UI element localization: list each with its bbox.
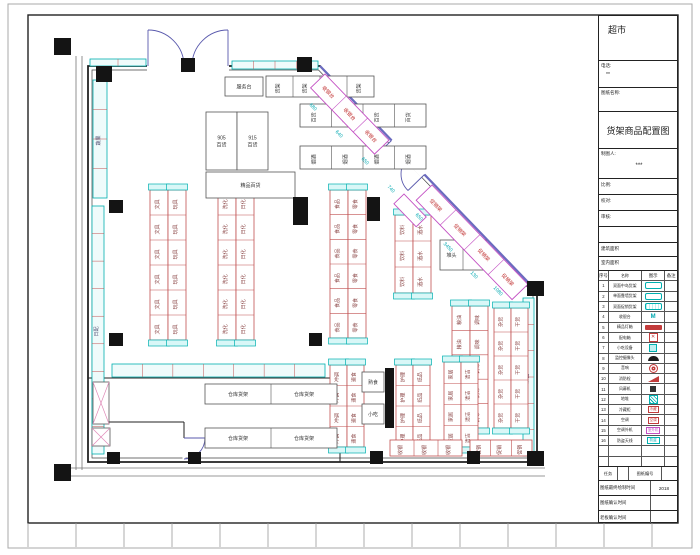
legend-row-name: 空调外机 (609, 426, 642, 435)
gondola-endcap (460, 356, 480, 362)
gondola-cell-label: 护理 (400, 413, 407, 423)
fixture-box-label: 精品百货 (240, 182, 260, 189)
store-name: 超市 (599, 16, 677, 61)
gondola-cell-label: 干货 (515, 317, 522, 327)
gondola-cell-label: 文具 (154, 299, 161, 309)
door-arc (148, 30, 184, 66)
darksq-symbol-icon (650, 386, 656, 392)
building-area-row: 建筑面积 (599, 243, 677, 257)
shelf-symbol-icon (645, 282, 662, 289)
legend-row (599, 446, 677, 456)
gondola-cell-label: 杂货 (498, 413, 505, 423)
gondola-cell-label: 干货 (515, 365, 522, 375)
legend-row-symbol (642, 384, 665, 393)
legend-row-name: 冷藏柜 (609, 405, 642, 414)
gondola-cell-label: 家居 (448, 369, 455, 379)
column (188, 452, 201, 464)
wall-shelf-label: 蔬果 (95, 135, 102, 145)
legend-row-symbol: M (642, 312, 665, 321)
legend-row-note (665, 405, 677, 414)
legend-row-symbol (642, 292, 665, 301)
gondola-cell-label: 零食 (352, 322, 359, 332)
legend-row-name: 双面促销货架 (609, 302, 642, 311)
phone-row: 电话: ** (599, 61, 677, 88)
legend-row-name (609, 446, 642, 455)
legend-row: 2单面靠墙货架 (599, 292, 677, 302)
legend-row-name: 小吃设备 (609, 343, 642, 352)
gondola-cell-label: 调味 (474, 315, 481, 325)
gondola-cell-label: 洗化 (222, 224, 229, 234)
legend-row-note (665, 415, 677, 424)
gondola-cell-label: 百货 (374, 112, 381, 122)
gondola-cell-label: 护理 (400, 393, 407, 403)
gondola-cell-label: 文具 (154, 224, 161, 234)
legend-row-note (665, 395, 677, 404)
dimension-text: 640 (334, 129, 344, 139)
legend-row: 16防盗天线防盗 (599, 436, 677, 446)
column (309, 333, 322, 346)
boss-time-label: 老板确认时间 (599, 511, 651, 524)
gondola-cell-label: 酒水 (417, 251, 424, 261)
legend-row-name: 双面中岛货架 (609, 281, 642, 290)
legend-row: 3双面促销货架 (599, 302, 677, 312)
shelf-symbol-icon (645, 293, 662, 300)
legend-row-note (665, 384, 677, 393)
legend-row-symbol (642, 446, 665, 455)
phone-value: ** (606, 72, 677, 78)
gondola-endcap (347, 338, 368, 344)
redflag-symbol-icon (648, 376, 659, 382)
door-arc (408, 175, 425, 191)
wall-shelf (112, 364, 325, 377)
legend-row-name: 精品灯箱 (609, 323, 642, 332)
gondola-endcap (167, 184, 188, 190)
gondola-cell-label: 饮料 (399, 251, 406, 261)
floor-plan-canvas: 蔬果日配米面货架货架货架货架百货百货百货百货烟酒烟酒烟酒烟酒文具文具文具文具文具… (0, 0, 700, 555)
cyanhatch-symbol-icon (649, 395, 658, 404)
gondola-cell-label: 酒水 (417, 225, 424, 235)
legend-row: 6配电箱✕ (599, 333, 677, 343)
fixture-box-label: 905 (217, 136, 226, 142)
gondola-cell-label: 促销 (496, 445, 503, 455)
legend-row-name: 地堆 (609, 395, 642, 404)
gondola-cell-label: 纸品 (417, 413, 424, 423)
gondola-cell-label: 零食 (352, 273, 359, 283)
gondola-cell-label: 食品 (334, 224, 341, 234)
legend-row: 5精品灯箱 (599, 323, 677, 333)
gondola-endcap (510, 302, 530, 308)
legend-row-no: 1 (599, 281, 609, 290)
column (527, 451, 544, 466)
column (367, 197, 380, 221)
gondola-cell-label: 速食 (351, 372, 358, 382)
legend-row: 8监控摄像头 (599, 354, 677, 364)
task-label: 任务 (599, 467, 618, 480)
gondola-cell-label: 文具 (154, 324, 161, 334)
check-row: 校对: (599, 195, 677, 211)
gondola-cell-label: 洗化 (222, 299, 229, 309)
final-time-value: 2018 (651, 481, 677, 495)
gondola-cell-label: 烟酒 (342, 154, 349, 164)
gondola-cell-label: 货架 (275, 83, 282, 93)
gondola-cell-label: 玩具 (173, 324, 179, 334)
gondola-cell-label: 收银 (445, 445, 452, 455)
gondola-cell-label: 清洁 (465, 412, 472, 422)
legend-row-no: 14 (599, 415, 609, 424)
dimension-text: 130 (469, 270, 479, 280)
gondola-cell-label: 杂货 (498, 341, 505, 351)
column (385, 368, 394, 428)
legend-row: 4收银台M (599, 312, 677, 322)
gondola-cell-label: 速食 (351, 434, 358, 444)
gondola-cell-label: 粮油 (456, 339, 463, 349)
legend-row-no: 8 (599, 354, 609, 363)
fixture-box-label: 915 (248, 136, 257, 142)
legend-row-no: 3 (599, 302, 609, 311)
gondola-cell-label: 百货 (405, 112, 412, 122)
legend-row-note (665, 281, 677, 290)
gondola-cell-label: 食品 (334, 322, 341, 332)
gondola-cell-label: 零食 (352, 248, 359, 258)
gondola-endcap (469, 300, 490, 306)
gondola-cell-label: 堆头 (446, 252, 456, 259)
cyanbox-symbol-icon: 防盗 (647, 437, 660, 444)
gondola-cell-label: 纸品 (417, 372, 424, 382)
final-time-label: 图纸最终绘制时间 (599, 481, 651, 495)
gondola-cell-label: 食品 (334, 248, 341, 258)
legend-row-no: 7 (599, 343, 609, 352)
gondola-cell-label: 干货 (515, 341, 522, 351)
gondola-cell-label: 食品 (334, 273, 341, 283)
column (181, 58, 195, 72)
legend-row-name: 单面靠墙货架 (609, 292, 642, 301)
gondola-endcap (167, 340, 188, 346)
gondola-cell-label: 日化 (240, 274, 247, 284)
diagonal-shelf-group: 促销架促销架促销架促销架 (416, 185, 528, 300)
drafter-label: 制图人: (601, 151, 677, 157)
legend-row: 9音响 (599, 364, 677, 374)
fixture-box-label: 百货 (247, 142, 257, 149)
confirm-time-value (651, 496, 677, 510)
legend-row: 1双面中岛货架 (599, 281, 677, 291)
drawing-no-value (662, 467, 677, 480)
gondola-cell-label: 杂货 (498, 389, 505, 399)
gondola-cell-label: 仓库货架 (228, 435, 248, 442)
gondola-cell-label: 货架 (356, 83, 363, 93)
gondola-cell-label: 冲调 (334, 413, 341, 423)
shelf2-symbol-icon (645, 303, 662, 310)
blank-row (599, 227, 677, 243)
legend-row-symbol (642, 374, 665, 383)
redbox-symbol-icon: 空调 (648, 417, 659, 424)
review-row: 审核: (599, 211, 677, 227)
fixture-box-label: 小吃 (368, 411, 378, 418)
column (297, 57, 312, 72)
legend-row-note (665, 436, 677, 445)
gondola-endcap (412, 359, 432, 365)
legend-row-note (665, 302, 677, 311)
gondola-cell-label: 日化 (240, 249, 247, 259)
wall-shelf-label: 日配 (94, 326, 100, 336)
m-symbol-icon: M (651, 314, 656, 320)
gondola-cell-label: 杂货 (498, 317, 505, 327)
legend-row-symbol: 室外机 (642, 426, 665, 435)
legend-row-name (609, 457, 642, 466)
gondola-cell-label: 护理 (400, 372, 407, 382)
gondola-cell-label: 百货 (311, 112, 318, 122)
gondola-cell-label: 家居 (448, 391, 455, 401)
gondola-cell-label: 洗化 (222, 199, 229, 209)
legend-row-no: 10 (599, 374, 609, 383)
legend-row-name: 音响 (609, 364, 642, 373)
legend-row-note (665, 323, 677, 332)
gondola-cell-label: 日化 (240, 324, 247, 334)
gondola-cell-label: 文具 (154, 274, 161, 284)
gondola-cell-label: 洗化 (222, 274, 229, 284)
legend-row (599, 457, 677, 466)
gondola-cell-label: 收银 (397, 445, 404, 455)
boss-time-row: 老板确认时间 (599, 511, 677, 524)
gondola-cell-label: 清洁 (465, 369, 472, 379)
gondola-endcap (510, 428, 530, 434)
gondola-cell-label: 文具 (154, 249, 161, 259)
gondola-cell-label: 玩具 (173, 249, 179, 259)
gondola-cell-label: 洗化 (222, 324, 229, 334)
legend-row-no: 15 (599, 426, 609, 435)
gondola-cell-label: 饮料 (399, 225, 406, 235)
legend-row-no: 2 (599, 292, 609, 301)
legend-row: 11风幕机 (599, 384, 677, 394)
gondola-cell-label: 仓库货架 (294, 435, 314, 442)
gondola-cell-label: 烟酒 (311, 154, 318, 164)
column (109, 333, 123, 346)
column (467, 451, 480, 464)
boss-time-value (651, 511, 677, 524)
legend-row-name: 收银台 (609, 312, 642, 321)
legend-row-no: 5 (599, 323, 609, 332)
legend-row-no: 16 (599, 436, 609, 445)
legend-row-symbol: 空调 (642, 415, 665, 424)
drawing-title: 货架商品配置图 (599, 112, 677, 149)
legend-row-symbol (642, 364, 665, 373)
legend-row-no: 12 (599, 395, 609, 404)
legend-header-name: 名称 (609, 271, 642, 280)
legend-row-note (665, 292, 677, 301)
magbox-symbol-icon: 室外机 (646, 427, 661, 434)
gondola-cell-label: 清洁 (465, 391, 472, 401)
legend-row-name: 风幕机 (609, 384, 642, 393)
legend-row-no: 6 (599, 333, 609, 342)
legend-row-symbol (642, 457, 665, 466)
legend-row-name: 防盗天线 (609, 436, 642, 445)
legend-table: 序号 名称 图示 备注 1双面中岛货架2单面靠墙货架3双面促销货架4收银台M5精… (599, 271, 677, 467)
legend-row-symbol: 防盗 (642, 436, 665, 445)
gondola-cell-label: 饮料 (399, 277, 406, 287)
legend-row: 13冷藏柜冷藏 (599, 405, 677, 415)
gondola-cell-label: 粮油 (456, 315, 463, 325)
legend-row-note (665, 426, 677, 435)
legend-row-symbol (642, 323, 665, 332)
legend-row-name: 空调 (609, 415, 642, 424)
legend-row-note (665, 343, 677, 352)
legend-header-no: 序号 (599, 271, 609, 280)
gondola-cell-label: 杂货 (498, 365, 505, 375)
redbar-symbol-icon (645, 325, 662, 330)
legend-row-symbol: ✕ (642, 333, 665, 342)
task-row: 任务 图纸编号 (599, 467, 677, 481)
interior-area-row: 室内面积 (599, 257, 677, 271)
gondola-cell-label: 干货 (515, 413, 522, 423)
gondola-cell-label: 促销 (517, 445, 524, 455)
dimension-text: 740 (386, 184, 396, 194)
legend-row-note (665, 354, 677, 363)
legend-row-name: 监控摄像头 (609, 354, 642, 363)
gondola-endcap (346, 359, 366, 365)
gondola-cell-label: 纸品 (417, 393, 424, 403)
gondola-cell-label: 冲调 (334, 372, 341, 382)
gondola-cell-label: 日化 (240, 299, 247, 309)
gondola-cell-label: 零食 (352, 199, 359, 209)
legend-row-no: 11 (599, 384, 609, 393)
gondola-cell-label: 收银 (421, 445, 428, 455)
confirm-time-label: 图纸确认时间 (599, 496, 651, 510)
legend-header-note: 备注 (665, 271, 677, 280)
gondola-cell-label: 日化 (240, 199, 247, 209)
gondola-cell-label: 食品 (334, 199, 341, 209)
gondola-cell-label: 家居 (448, 412, 455, 422)
legend-row-no: 13 (599, 405, 609, 414)
gondola-cell-label: 酒水 (417, 277, 424, 287)
gondola-cell-label: 日化 (240, 224, 247, 234)
legend-row-note (665, 364, 677, 373)
drawing-name-label: 图纸名称: (599, 88, 677, 112)
column (107, 452, 120, 464)
confirm-time-row: 图纸确认时间 (599, 496, 677, 511)
column (54, 38, 71, 55)
legend-row: 15空调外机室外机 (599, 426, 677, 436)
legend-row-no: 9 (599, 364, 609, 373)
column (54, 464, 71, 481)
legend-header: 序号 名称 图示 备注 (599, 271, 677, 281)
fixture-box-label: 百货 (216, 142, 226, 149)
legend-row-no (599, 457, 609, 466)
cyanglyph-symbol-icon (649, 344, 657, 352)
column (96, 66, 112, 82)
gondola-cell-label: 玩具 (173, 274, 179, 284)
column (527, 281, 544, 296)
legend-row: 14空调空调 (599, 415, 677, 425)
legend-row-note (665, 446, 677, 455)
fixture-box-label: 服务台 (236, 84, 251, 91)
drafter-value: *** (601, 163, 677, 169)
legend-row-symbol (642, 302, 665, 311)
gondola-endcap (347, 184, 368, 190)
legend-row-symbol (642, 343, 665, 352)
cad-sheet: { "title_block": { "store_name": "超市", "… (0, 0, 700, 555)
gondola-cell-label: 玩具 (173, 299, 179, 309)
gondola-cell-label: 零食 (352, 298, 359, 308)
gondola-cell-label: 货架 (302, 83, 309, 93)
legend-row-note (665, 457, 677, 466)
gondola-cell-label: 干货 (515, 389, 522, 399)
legend-row-symbol (642, 354, 665, 363)
legend-row-no: 4 (599, 312, 609, 321)
legend-row-name: 配电箱 (609, 333, 642, 342)
legend-row: 10消防栓 (599, 374, 677, 384)
dome-symbol-icon (648, 356, 659, 361)
task-value (618, 467, 629, 480)
fixture-box-label: 熟食 (368, 379, 378, 386)
gondola-cell-label: 仓库货架 (228, 391, 248, 398)
gondola-cell-label: 零食 (352, 224, 359, 234)
gondola-cell-label: 烟酒 (405, 154, 412, 164)
gondola-cell-label: 调味 (474, 339, 481, 349)
legend-row: 12地堆 (599, 395, 677, 405)
column (293, 197, 308, 225)
legend-row-note (665, 374, 677, 383)
gondola-cell-label: 仓库货架 (294, 391, 314, 398)
gondola-cell-label: 洗化 (222, 249, 229, 259)
gondola-endcap (412, 293, 433, 299)
gondola-cell-label: 烟酒 (374, 154, 381, 164)
legend-row-name: 消防栓 (609, 374, 642, 383)
final-time-row: 图纸最终绘制时间 2018 (599, 481, 677, 496)
legend-row-symbol (642, 395, 665, 404)
column (370, 451, 383, 464)
redboxtext-symbol-icon: 冷藏 (648, 406, 659, 413)
gondola-cell-label: 速食 (351, 393, 358, 403)
legend-row: 7小吃设备 (599, 343, 677, 353)
column (109, 200, 123, 213)
door-arc (192, 30, 228, 66)
legend-row-note (665, 333, 677, 342)
drawing-no-label: 图纸编号 (629, 467, 662, 480)
gondola-endcap (235, 340, 256, 346)
gondola-cell-label: 速食 (351, 413, 358, 423)
scale-row: 比例: (599, 179, 677, 195)
legend-header-sym: 图示 (642, 271, 665, 280)
gondola-cell-label: 文具 (154, 199, 161, 209)
drafter-row: 制图人: *** (599, 149, 677, 179)
gondola-cell-label: 食品 (334, 298, 341, 308)
gondola-endcap (346, 447, 366, 453)
gondola-cell-label: 玩具 (173, 224, 179, 234)
legend-row-no (599, 446, 609, 455)
phone-label: 电话: (601, 63, 677, 69)
gondola-cell-label: 玩具 (173, 199, 179, 209)
redcircle-symbol-icon (649, 364, 658, 373)
redhatch-symbol-icon: ✕ (649, 333, 658, 342)
legend-row-symbol (642, 281, 665, 290)
title-block: 超市 电话: ** 图纸名称: 货架商品配置图 制图人: *** 比例: 校对:… (598, 15, 678, 523)
legend-row-note (665, 312, 677, 321)
legend-row-symbol: 冷藏 (642, 405, 665, 414)
